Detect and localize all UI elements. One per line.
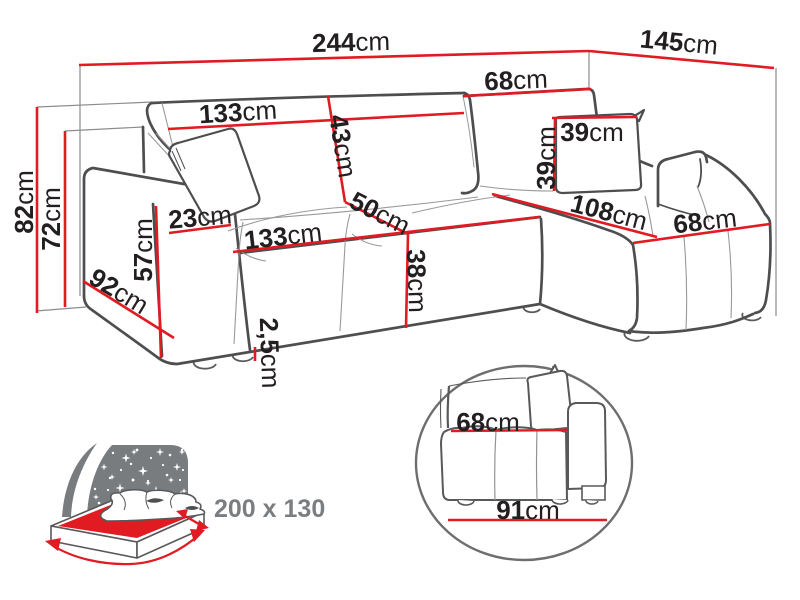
svg-text:72cm: 72cm — [36, 187, 66, 251]
svg-text:39cm: 39cm — [560, 117, 624, 147]
svg-text:2,5cm: 2,5cm — [254, 317, 286, 389]
svg-text:200 x 130: 200 x 130 — [214, 495, 325, 523]
svg-text:244cm: 244cm — [312, 26, 391, 58]
svg-text:68cm: 68cm — [456, 407, 520, 437]
svg-text:23cm: 23cm — [167, 199, 233, 234]
svg-text:133cm: 133cm — [198, 95, 278, 130]
svg-text:68cm: 68cm — [484, 64, 549, 97]
svg-text:39cm: 39cm — [531, 126, 561, 190]
svg-text:38cm: 38cm — [401, 249, 433, 314]
svg-text:91cm: 91cm — [496, 495, 560, 525]
svg-text:82cm: 82cm — [9, 170, 39, 234]
svg-text:57cm: 57cm — [128, 218, 158, 282]
